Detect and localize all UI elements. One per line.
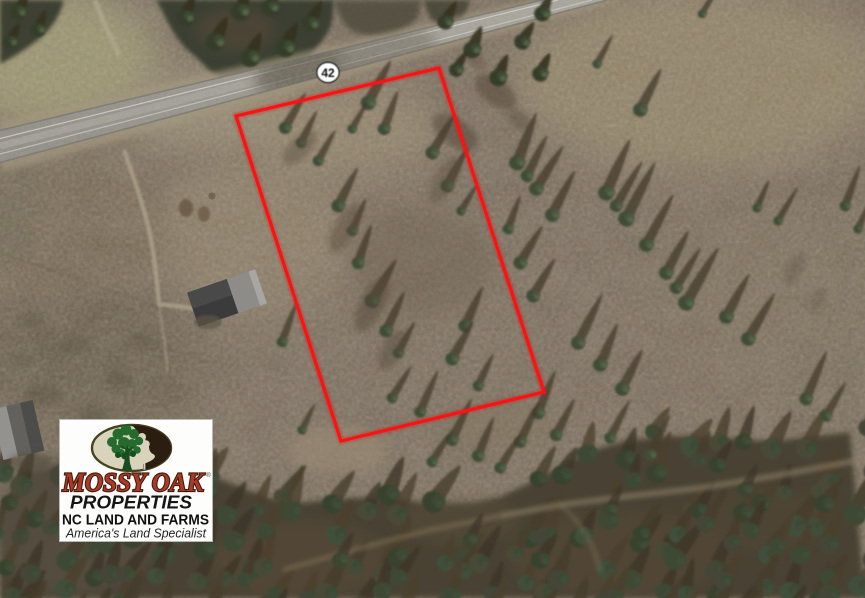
svg-text:America's Land Specialist: America's Land Specialist <box>65 527 206 541</box>
svg-text:PROPERTIES: PROPERTIES <box>70 493 192 513</box>
svg-text:®: ® <box>206 471 211 479</box>
svg-text:42: 42 <box>321 66 335 80</box>
